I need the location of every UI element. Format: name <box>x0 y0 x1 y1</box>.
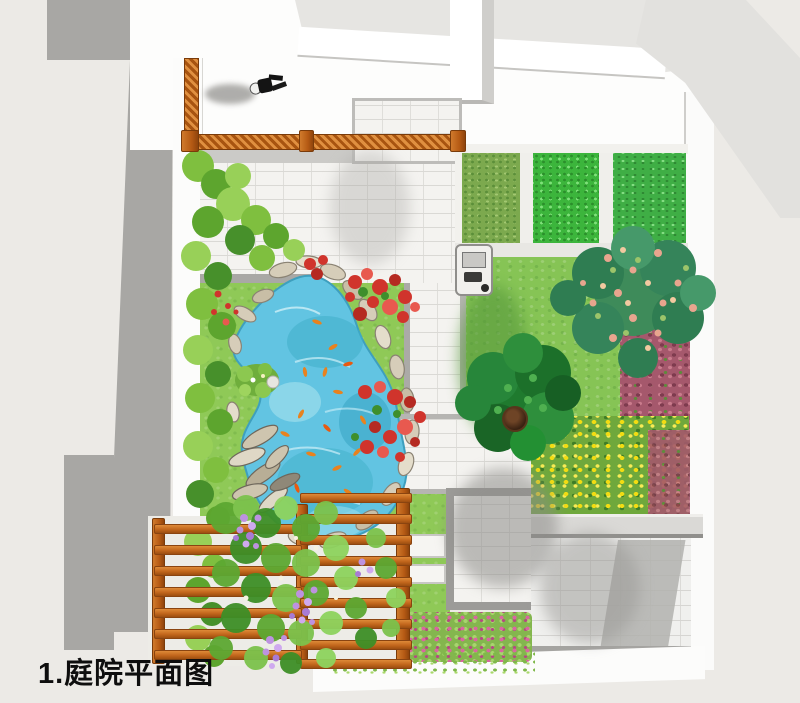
railing-horizontal <box>184 134 466 150</box>
magenta-bed-lower <box>648 430 690 516</box>
building-block-shadow <box>47 0 132 60</box>
tree-shadow-patio-2 <box>540 532 640 644</box>
tree-shadow-terrace <box>330 150 410 265</box>
plot-gap-1 <box>520 153 533 243</box>
railing-post-3 <box>450 130 466 152</box>
railing-post-1 <box>181 130 199 152</box>
railing-post-2 <box>299 130 314 152</box>
pergola-shadow-teeth <box>64 455 114 650</box>
fire-pot <box>502 406 528 432</box>
vegetable-plot-1 <box>462 153 520 243</box>
mixed-tree <box>538 208 718 396</box>
roof-beam <box>450 0 494 104</box>
plan-caption: 1.庭院平面图 <box>38 650 318 690</box>
grill-cart <box>455 244 493 296</box>
courtyard-plan-rendering: 1.庭院平面图 <box>0 0 800 703</box>
